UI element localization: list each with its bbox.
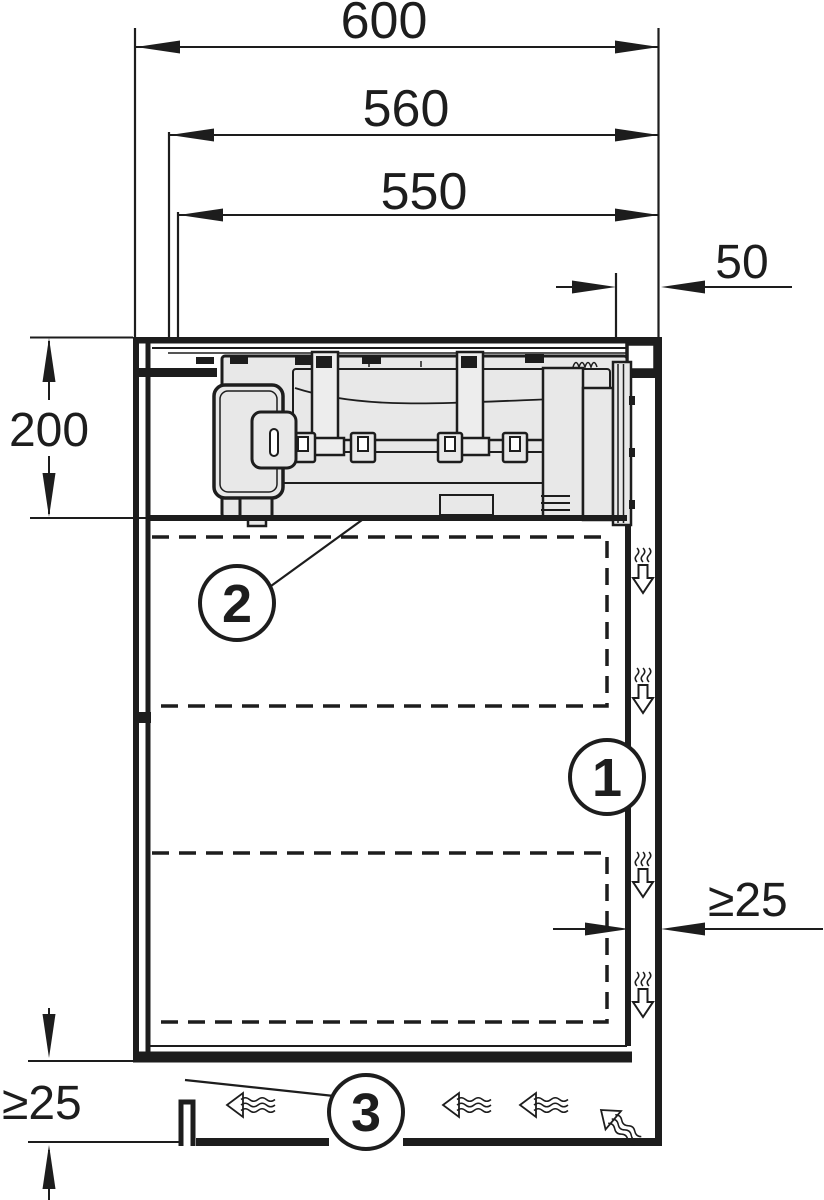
cover-slot <box>270 429 278 456</box>
dimension-label-560: 560 <box>363 80 450 138</box>
duct-front <box>543 368 583 517</box>
worktop <box>133 337 662 344</box>
spring-clip <box>351 433 375 462</box>
flange-tab <box>629 396 635 405</box>
callout-2: 2 <box>200 566 274 640</box>
spring-clip <box>503 433 527 462</box>
dimension-label-600: 600 <box>341 0 428 50</box>
drawing-canvas: 600 560 550 50 200 ≥25 <box>0 0 824 1200</box>
rating-plate <box>440 495 493 515</box>
left-bracket-bar <box>133 368 217 377</box>
plinth-panel <box>181 1102 193 1146</box>
duct-back <box>583 388 613 520</box>
flange-tab <box>629 448 635 457</box>
spring-clip <box>438 433 462 462</box>
dimension-label-200: 200 <box>9 404 89 457</box>
strap-clip <box>316 356 332 368</box>
installation-drawing: 600 560 550 50 200 ≥25 <box>0 0 824 1200</box>
duct-outlet-flange <box>613 362 631 525</box>
flange-tab <box>629 500 635 509</box>
callout-number: 3 <box>351 1083 381 1143</box>
dimension-label-plinth-clearance: ≥25 <box>2 1077 82 1130</box>
callout-number: 1 <box>592 748 622 808</box>
dimension-label-550: 550 <box>381 163 468 221</box>
dimension-label-50: 50 <box>715 236 768 289</box>
box-foot <box>240 498 272 517</box>
strap-clip <box>461 356 477 368</box>
callout-1: 1 <box>570 740 644 814</box>
callout-number: 2 <box>222 574 252 634</box>
wall-joint-block <box>133 712 151 723</box>
dimension-label-rear-clearance: ≥25 <box>708 874 788 927</box>
callout-3: 3 <box>329 1075 403 1149</box>
